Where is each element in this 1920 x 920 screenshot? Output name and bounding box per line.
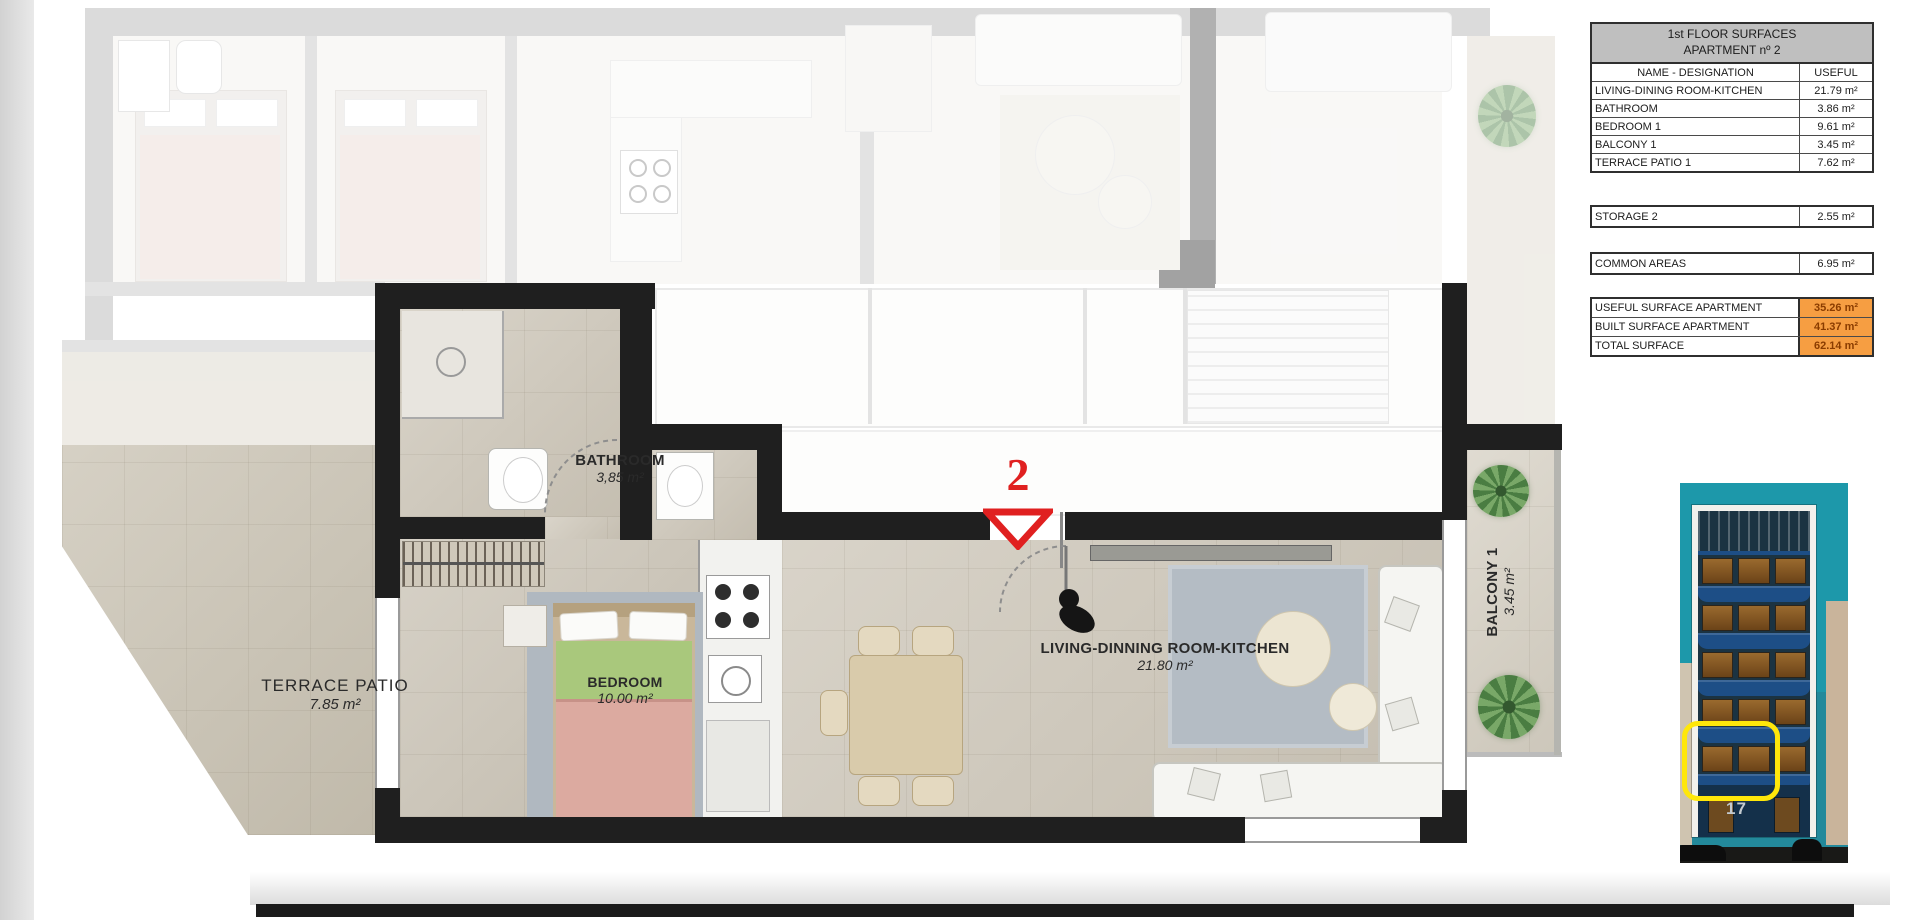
surfaces-table-title: 1st FLOOR SURFACES APARTMENT nº 2 xyxy=(1590,22,1874,64)
wall xyxy=(62,340,375,352)
wall xyxy=(1083,288,1087,424)
surfaces-table-grid: NAME - DESIGNATION USEFUL LIVING-DINING … xyxy=(1590,64,1874,173)
table-row: TERRACE PATIO 1 7.62 m² xyxy=(1592,153,1872,171)
wall xyxy=(1442,424,1562,450)
neighbor-building xyxy=(1826,601,1848,845)
plant xyxy=(1478,675,1540,739)
bed xyxy=(553,603,695,833)
bath-fixture xyxy=(176,40,222,94)
floor-plan-page: 2 BATHROOM 3,85 m² BEDROOM 10.00 m² LIVI… xyxy=(0,0,1920,920)
table-row: USEFUL SURFACE APARTMENT 35.26 m² xyxy=(1592,299,1872,317)
living-label: LIVING-DINNING ROOM-KITCHEN 21.80 m² xyxy=(1015,640,1315,673)
car-silhouette xyxy=(1680,845,1726,861)
bed xyxy=(335,90,487,282)
table-row: BEDROOM 1 9.61 m² xyxy=(1592,117,1872,135)
building-photo: 17 xyxy=(1680,483,1848,863)
plant xyxy=(1478,85,1536,147)
bedroom-label: BEDROOM 10.00 m² xyxy=(558,674,692,706)
wall xyxy=(305,36,317,284)
wall xyxy=(85,8,113,348)
terrace-upper-faded xyxy=(62,350,375,445)
table-row: BALCONY 1 3.45 m² xyxy=(1592,135,1872,153)
apartment-highlight-box xyxy=(1682,721,1780,801)
wall xyxy=(620,283,652,540)
totals-block: USEFUL SURFACE APARTMENT 35.26 m² BUILT … xyxy=(1590,297,1874,357)
shower xyxy=(402,311,504,419)
plant xyxy=(1473,465,1529,517)
sofa xyxy=(1265,12,1452,92)
surfaces-table: 1st FLOOR SURFACES APARTMENT nº 2 NAME -… xyxy=(1590,22,1874,357)
terrace-label: TERRACE PATIO 7.85 m² xyxy=(245,676,425,713)
chair xyxy=(912,776,954,806)
wall xyxy=(1442,283,1467,520)
kitchen-sink xyxy=(708,655,762,703)
wall xyxy=(757,450,782,540)
wall xyxy=(375,283,655,309)
building-floor xyxy=(1698,649,1810,696)
page-left-margin xyxy=(0,0,34,920)
table-row: BUILT SURFACE APARTMENT 41.37 m² xyxy=(1592,317,1872,336)
kitchen-cabinet xyxy=(706,720,770,812)
chair xyxy=(912,626,954,656)
wall xyxy=(1554,450,1561,755)
table-row: LIVING-DINING ROOM-KITCHEN 21.79 m² xyxy=(1592,81,1872,99)
bed xyxy=(135,90,287,282)
sofa xyxy=(975,14,1182,86)
chair xyxy=(820,690,848,736)
toilet xyxy=(488,448,548,510)
stove xyxy=(620,150,678,214)
entrance-door xyxy=(1774,797,1800,833)
table-row: TOTAL SURFACE 62.14 m² xyxy=(1592,336,1872,355)
storage-row: STORAGE 2 2.55 m² xyxy=(1590,205,1874,228)
wall xyxy=(1442,790,1467,843)
next-plan-top-edge xyxy=(256,904,1854,917)
wall xyxy=(398,517,545,539)
wall xyxy=(375,817,1245,843)
sofa-pillow xyxy=(1260,770,1292,802)
building-floor xyxy=(1698,555,1810,602)
entrance-marker-icon xyxy=(983,508,1053,550)
table-header-row: NAME - DESIGNATION USEFUL xyxy=(1592,64,1872,81)
wall xyxy=(640,424,782,450)
chair xyxy=(858,776,900,806)
wall xyxy=(1065,512,1442,540)
table-row: BATHROOM 3.86 m² xyxy=(1592,99,1872,117)
wall xyxy=(505,36,517,284)
balcony-label: BALCONY 1 3.45 m² xyxy=(1484,517,1540,667)
stairs xyxy=(1187,290,1389,424)
nightstand xyxy=(503,605,547,647)
window xyxy=(1245,817,1420,843)
round-table xyxy=(1035,115,1115,195)
wall xyxy=(868,288,872,424)
person-icon xyxy=(1045,585,1103,641)
building-rooftop xyxy=(1698,511,1810,555)
dining-table xyxy=(849,655,963,775)
kitchen-counter xyxy=(610,60,812,118)
wall xyxy=(375,283,400,598)
round-table xyxy=(1098,175,1152,229)
window xyxy=(1442,520,1467,790)
round-table xyxy=(1329,683,1377,731)
stove xyxy=(706,575,770,639)
apartment-number-marker: 2 xyxy=(996,448,1040,501)
bath-fixture xyxy=(118,40,170,112)
page-bottom-gradient xyxy=(250,872,1890,905)
bathroom-floor xyxy=(545,517,620,540)
dining-table xyxy=(845,25,932,132)
wardrobe xyxy=(402,541,545,587)
wall xyxy=(85,282,385,296)
building-floor xyxy=(1698,602,1810,649)
common-areas-row: COMMON AREAS 6.95 m² xyxy=(1590,252,1874,275)
balcony-edge xyxy=(1467,752,1562,757)
tv-sideboard xyxy=(1090,545,1332,561)
wall xyxy=(782,512,990,540)
car-silhouette xyxy=(1792,839,1822,861)
chair xyxy=(858,626,900,656)
street-number: 17 xyxy=(1726,799,1747,819)
bathroom-label: BATHROOM 3,85 m² xyxy=(540,452,700,485)
